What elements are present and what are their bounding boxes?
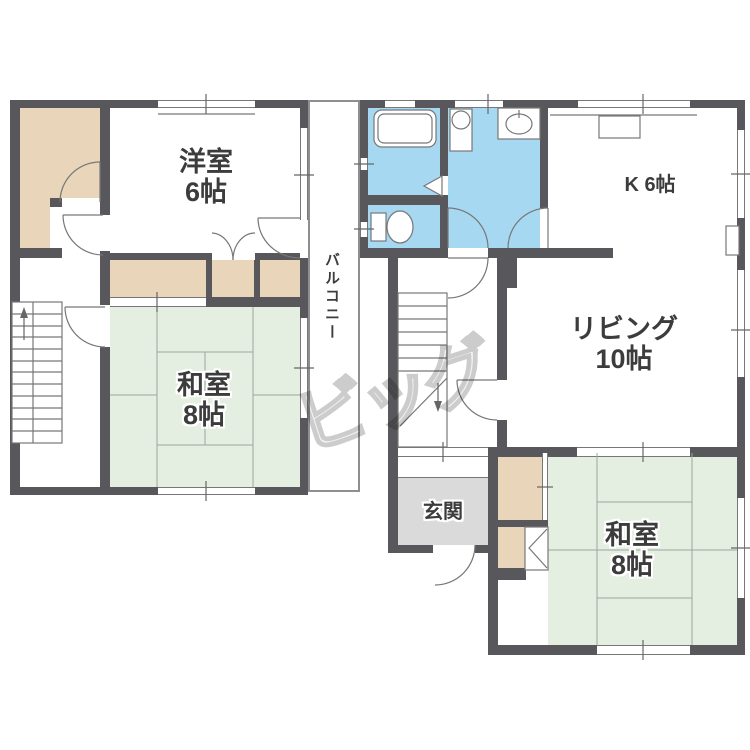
entrance-step <box>398 447 488 457</box>
window <box>385 100 415 108</box>
room-size: 8帖 <box>605 550 659 580</box>
room-size: 6帖 <box>179 177 233 207</box>
window <box>360 222 368 237</box>
room-name: 和室 <box>605 520 659 550</box>
room-label-japanese-room-lower: 和室 8帖 <box>605 520 659 580</box>
window <box>158 100 255 108</box>
window <box>578 100 690 108</box>
sliding-door <box>577 447 690 457</box>
room-label-balcony: バルコニー <box>324 252 339 342</box>
room-name: 洋室 <box>179 147 233 177</box>
window <box>300 318 308 418</box>
sliding-door <box>542 453 548 520</box>
window <box>300 128 308 220</box>
door-opening <box>433 545 475 553</box>
window <box>360 158 368 170</box>
sliding-door <box>110 297 206 307</box>
window <box>158 487 255 495</box>
door-opening <box>540 208 548 248</box>
room-size: 10帖 <box>570 344 678 374</box>
window <box>737 130 745 218</box>
window <box>597 645 690 655</box>
door-opening <box>212 253 255 260</box>
room-label-western-room: 洋室 6帖 <box>179 147 233 207</box>
room-name: 玄関 <box>423 501 463 523</box>
door-opening <box>100 305 110 347</box>
floorplan-canvas: 洋室 6帖 和室 8帖 バルコニー K 6帖 リビング 10帖 玄関 和室 8帖… <box>0 0 750 750</box>
entrance-step <box>398 457 488 478</box>
window <box>737 270 745 377</box>
room-label-japanese-room-upper: 和室 8帖 <box>177 370 231 430</box>
door-opening <box>300 220 308 258</box>
door-opening <box>497 380 507 420</box>
windows-and-openings <box>0 0 750 750</box>
room-name: バルコニー <box>323 252 340 342</box>
room-size: 8帖 <box>177 400 231 430</box>
room-name: K 6帖 <box>624 174 675 196</box>
room-name: 和室 <box>177 370 231 400</box>
window <box>737 498 745 598</box>
door-opening <box>100 215 110 251</box>
room-name: リビング <box>570 314 678 344</box>
window <box>455 100 503 108</box>
room-label-kitchen: K 6帖 <box>624 174 675 196</box>
room-label-living: リビング 10帖 <box>570 314 678 374</box>
room-label-entrance: 玄関 <box>423 501 463 523</box>
